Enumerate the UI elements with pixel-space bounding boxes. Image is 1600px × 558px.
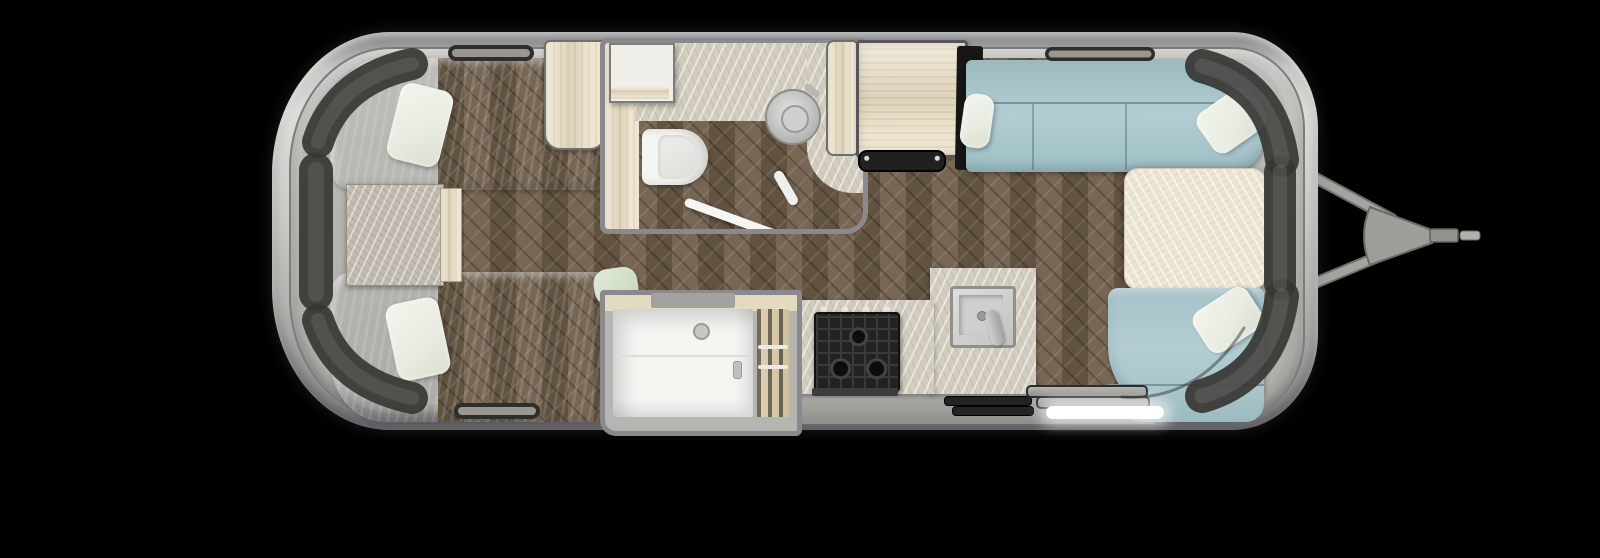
windows-overlay bbox=[0, 0, 1600, 558]
floor-plan-canvas bbox=[0, 0, 1600, 558]
